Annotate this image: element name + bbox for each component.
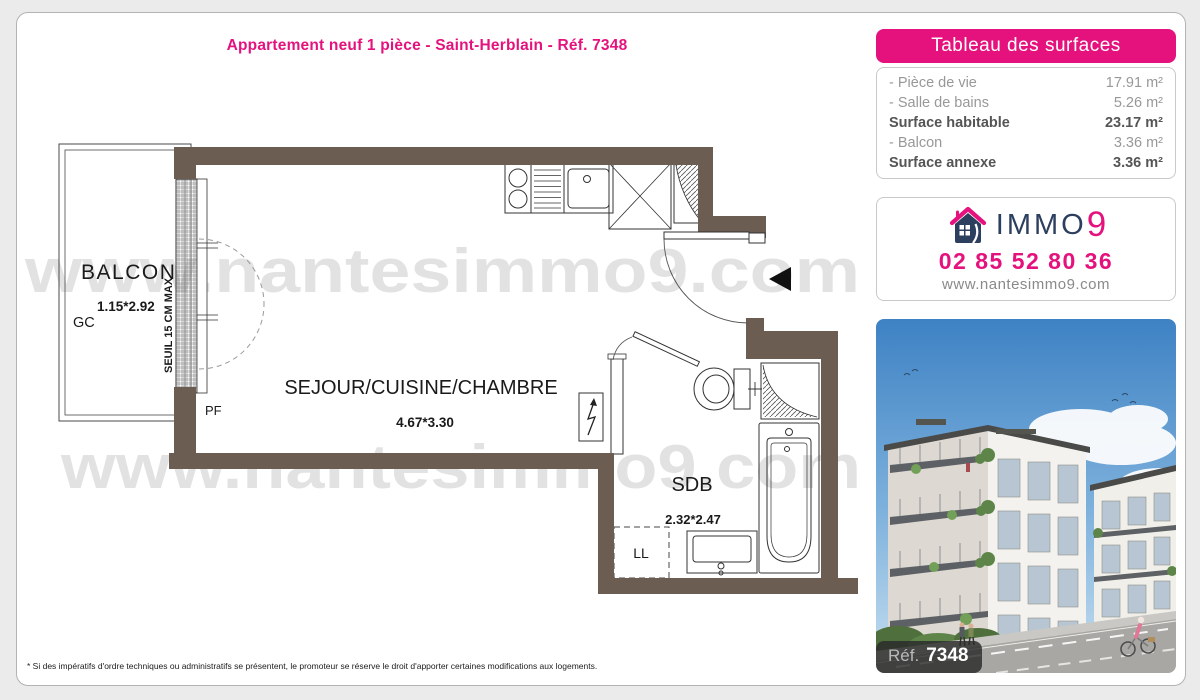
corner-shelf-icon <box>761 363 819 419</box>
pf-label: PF <box>205 403 222 418</box>
table-row-total: Surface habitable 23.17 m² <box>889 115 1163 131</box>
bathroom-partition <box>608 354 626 454</box>
ref-label: Réf. <box>888 646 919 666</box>
surfaces-table: - Pièce de vie 17.91 m² - Salle de bains… <box>876 67 1176 179</box>
agency-phone: 02 85 52 80 36 <box>939 248 1113 275</box>
row-value: 3.36 m² <box>1114 135 1163 151</box>
building-photo: Réf. 7348 <box>876 319 1176 673</box>
balcony-dims: 1.15*2.92 <box>97 299 155 314</box>
electrical-panel-icon <box>579 393 603 441</box>
footnote: * Si des impératifs d'ordre techniques o… <box>27 661 597 671</box>
kitchen-units <box>505 163 701 229</box>
washing-machine-label: LL <box>633 545 649 561</box>
row-value: 23.17 m² <box>1105 115 1163 131</box>
table-row: - Pièce de vie 17.91 m² <box>889 75 1163 91</box>
ref-badge: Réf. 7348 <box>876 641 982 673</box>
seuil-label: SEUIL 15 CM MAX <box>163 277 175 373</box>
walls <box>169 147 858 594</box>
bathroom-label: SDB <box>671 474 712 496</box>
agency-website-link[interactable]: www.nantesimmo9.com <box>942 276 1110 293</box>
brand-name: IMMO <box>996 209 1087 242</box>
house-logo-icon <box>946 205 990 245</box>
living-room-dims: 4.67*3.30 <box>396 415 454 430</box>
row-label: - Balcon <box>889 135 942 151</box>
living-room-label: SEJOUR/CUISINE/CHAMBRE <box>284 377 557 399</box>
plan-labels: BALCON 1.15*2.92 GC SEUIL 15 CM MAX PF S… <box>73 261 721 561</box>
page-card: Appartement neuf 1 pièce - Saint-Herblai… <box>16 12 1186 686</box>
bathroom-dims: 2.32*2.47 <box>665 512 721 527</box>
brand-digit: 9 <box>1087 205 1106 245</box>
table-row: - Salle de bains 5.26 m² <box>889 95 1163 111</box>
toilet-icon <box>694 368 762 410</box>
row-value: 3.36 m² <box>1113 155 1163 171</box>
bathroom-door <box>613 332 699 367</box>
page-title: Appartement neuf 1 pièce - Saint-Herblai… <box>17 37 837 55</box>
agency-logo: IMMO 9 <box>946 205 1106 245</box>
row-value: 17.91 m² <box>1106 75 1163 91</box>
row-label: - Pièce de vie <box>889 75 977 91</box>
row-label: - Salle de bains <box>889 95 989 111</box>
row-label: Surface annexe <box>889 155 996 171</box>
surfaces-header: Tableau des surfaces <box>876 29 1176 63</box>
balcony-gc-label: GC <box>73 315 95 331</box>
row-label: Surface habitable <box>889 115 1010 131</box>
table-row-total: Surface annexe 3.36 m² <box>889 155 1163 171</box>
ref-number: 7348 <box>926 645 968 667</box>
washbasin-icon <box>687 531 757 575</box>
row-value: 5.26 m² <box>1114 95 1163 111</box>
table-row: - Balcon 3.36 m² <box>889 135 1163 151</box>
agency-card: IMMO 9 02 85 52 80 36 www.nantesimmo9.co… <box>876 197 1176 301</box>
floor-plan: www.nantesimmo9.com www.nantesimmo9.com <box>21 86 861 671</box>
building-render <box>876 319 1176 673</box>
